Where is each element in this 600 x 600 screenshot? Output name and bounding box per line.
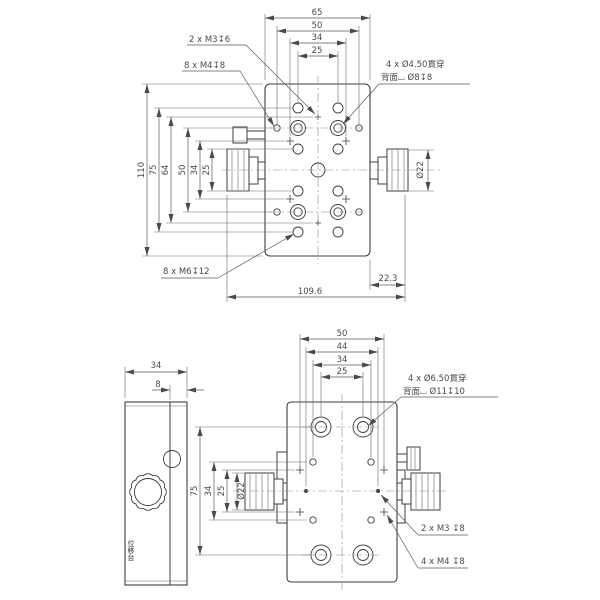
dim-50: 50 bbox=[312, 21, 323, 31]
dim-109-6: 109.6 bbox=[298, 287, 322, 297]
label-m3-holes: 2 x M3↧6 bbox=[189, 35, 230, 45]
dim-side-8: 8 bbox=[155, 380, 160, 390]
dim-f25l: 25 bbox=[217, 486, 227, 497]
top-view: 65 50 34 25 110 75 64 50 34 25 Ø22 22.3 … bbox=[137, 8, 470, 302]
dim-knob-dia: Ø22 bbox=[415, 161, 426, 179]
dim-f25: 25 bbox=[337, 367, 348, 377]
label-f-m3: 2 x M3 ↧8 bbox=[421, 524, 465, 534]
dim-25l: 25 bbox=[202, 165, 212, 176]
dim-f34l: 34 bbox=[204, 486, 214, 497]
dim-f34: 34 bbox=[337, 355, 348, 365]
drawing-canvas: 65 50 34 25 110 75 64 50 34 25 Ø22 22.3 … bbox=[0, 0, 600, 600]
dim-f75: 75 bbox=[190, 486, 200, 497]
dim-75: 75 bbox=[149, 165, 159, 176]
label-m6-holes: 8 x M6↧12 bbox=[163, 267, 210, 277]
front-left-knob bbox=[245, 473, 287, 510]
label-cbore-line2: 背面⌴ Ø8↧8 bbox=[381, 72, 432, 83]
label-f-m4: 4 x M4 ↧8 bbox=[421, 557, 465, 567]
dim-fknob-dia: Ø22 bbox=[236, 482, 247, 500]
dim-side-34: 34 bbox=[151, 361, 162, 371]
dim-50l: 50 bbox=[178, 165, 188, 176]
dim-64: 64 bbox=[161, 165, 171, 176]
side-view: 位移台 34 8 bbox=[125, 361, 204, 585]
dim-22-3: 22.3 bbox=[379, 274, 398, 284]
label-f-cbore-line2: 背面⌴ Ø11↧10 bbox=[403, 386, 465, 397]
dim-f44: 44 bbox=[337, 342, 348, 352]
dim-f50: 50 bbox=[337, 329, 348, 339]
front-lock-screw bbox=[397, 447, 420, 470]
technical-drawing: 65 50 34 25 110 75 64 50 34 25 Ø22 22.3 … bbox=[0, 0, 600, 600]
label-m4-holes: 8 x M4↧8 bbox=[184, 61, 225, 71]
dim-25: 25 bbox=[312, 46, 323, 56]
dim-34: 34 bbox=[312, 33, 323, 43]
brand-label: 位移台 bbox=[127, 539, 135, 562]
label-f-cbore-line1: 4 x Ø6.50貫穿 bbox=[408, 373, 466, 384]
lock-screw bbox=[233, 127, 265, 143]
dim-110: 110 bbox=[137, 162, 147, 178]
dim-34l: 34 bbox=[190, 165, 200, 176]
front-right-knob bbox=[397, 473, 440, 510]
front-view: 50 44 34 25 75 34 25 Ø22 4 x Ø6.50貫穿 背面⌴… bbox=[190, 329, 498, 592]
side-view-dimensions: 34 8 bbox=[125, 361, 204, 400]
dim-65: 65 bbox=[312, 8, 323, 18]
label-cbore-line1: 4 x Ø4.50貫穿 bbox=[386, 59, 444, 70]
